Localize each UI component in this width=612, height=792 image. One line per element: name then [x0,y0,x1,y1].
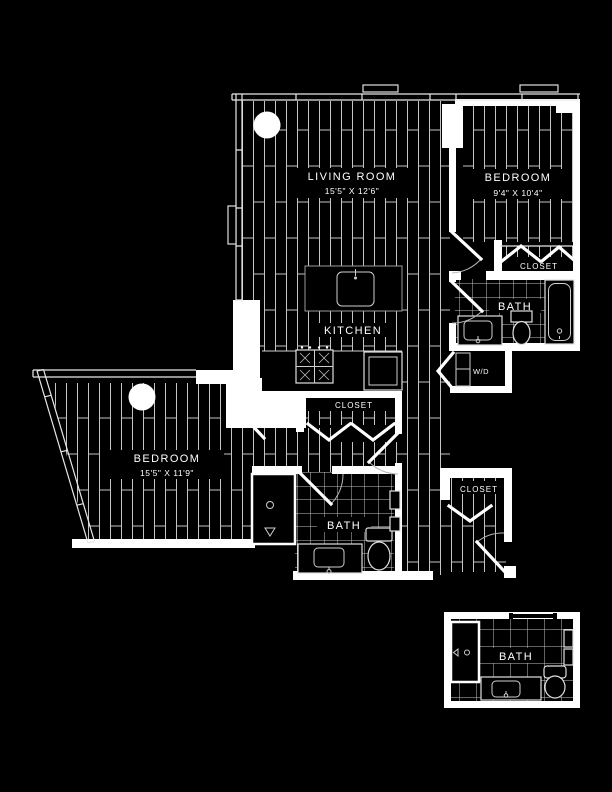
column [129,384,156,411]
column [254,112,281,139]
toilet-bowl [368,542,390,570]
bath-right-label: BATH [498,301,532,313]
toilet-bowl [545,676,565,698]
bath-detail-label: BATH [499,651,533,663]
bedroom-left-label: BEDROOM [134,453,201,465]
shower [451,622,479,682]
bedroom-left-dims: 15'5" X 11'9" [140,468,194,478]
kitchen-label: KITCHEN [324,325,382,337]
washer-dryer-label: W/D [473,367,489,376]
floor-plan: LIVING ROOM 15'5" X 12'6" BEDROOM 9'4" X… [0,0,612,792]
wall-shelf [390,517,400,531]
living-room-dims: 15'5" X 12'6" [325,186,380,196]
bedroom-right-dims: 9'4" X 10'4" [493,188,542,198]
toilet-bowl [513,322,530,345]
shower [252,474,295,544]
shower-door [512,614,554,618]
living-room-label: LIVING ROOM [308,171,397,183]
closet-bedroom-right-label: CLOSET [520,262,558,271]
floor-plan-page: LIVING ROOM 15'5" X 12'6" BEDROOM 9'4" X… [0,0,612,792]
wall-shelf [390,491,400,509]
stove [296,346,333,383]
bathtub [545,280,574,344]
bedroom-right-label: BEDROOM [485,172,552,184]
closet-hall-label: CLOSET [335,401,373,410]
island-faucet [354,277,357,280]
bath-lower-label: BATH [327,520,361,532]
closet-entry-label: CLOSET [460,485,498,494]
kitchen-island [305,266,402,311]
wall-shelf [564,649,573,665]
toilet-tank [366,528,392,541]
refrigerator [364,352,402,390]
wall-shelf [564,630,573,647]
